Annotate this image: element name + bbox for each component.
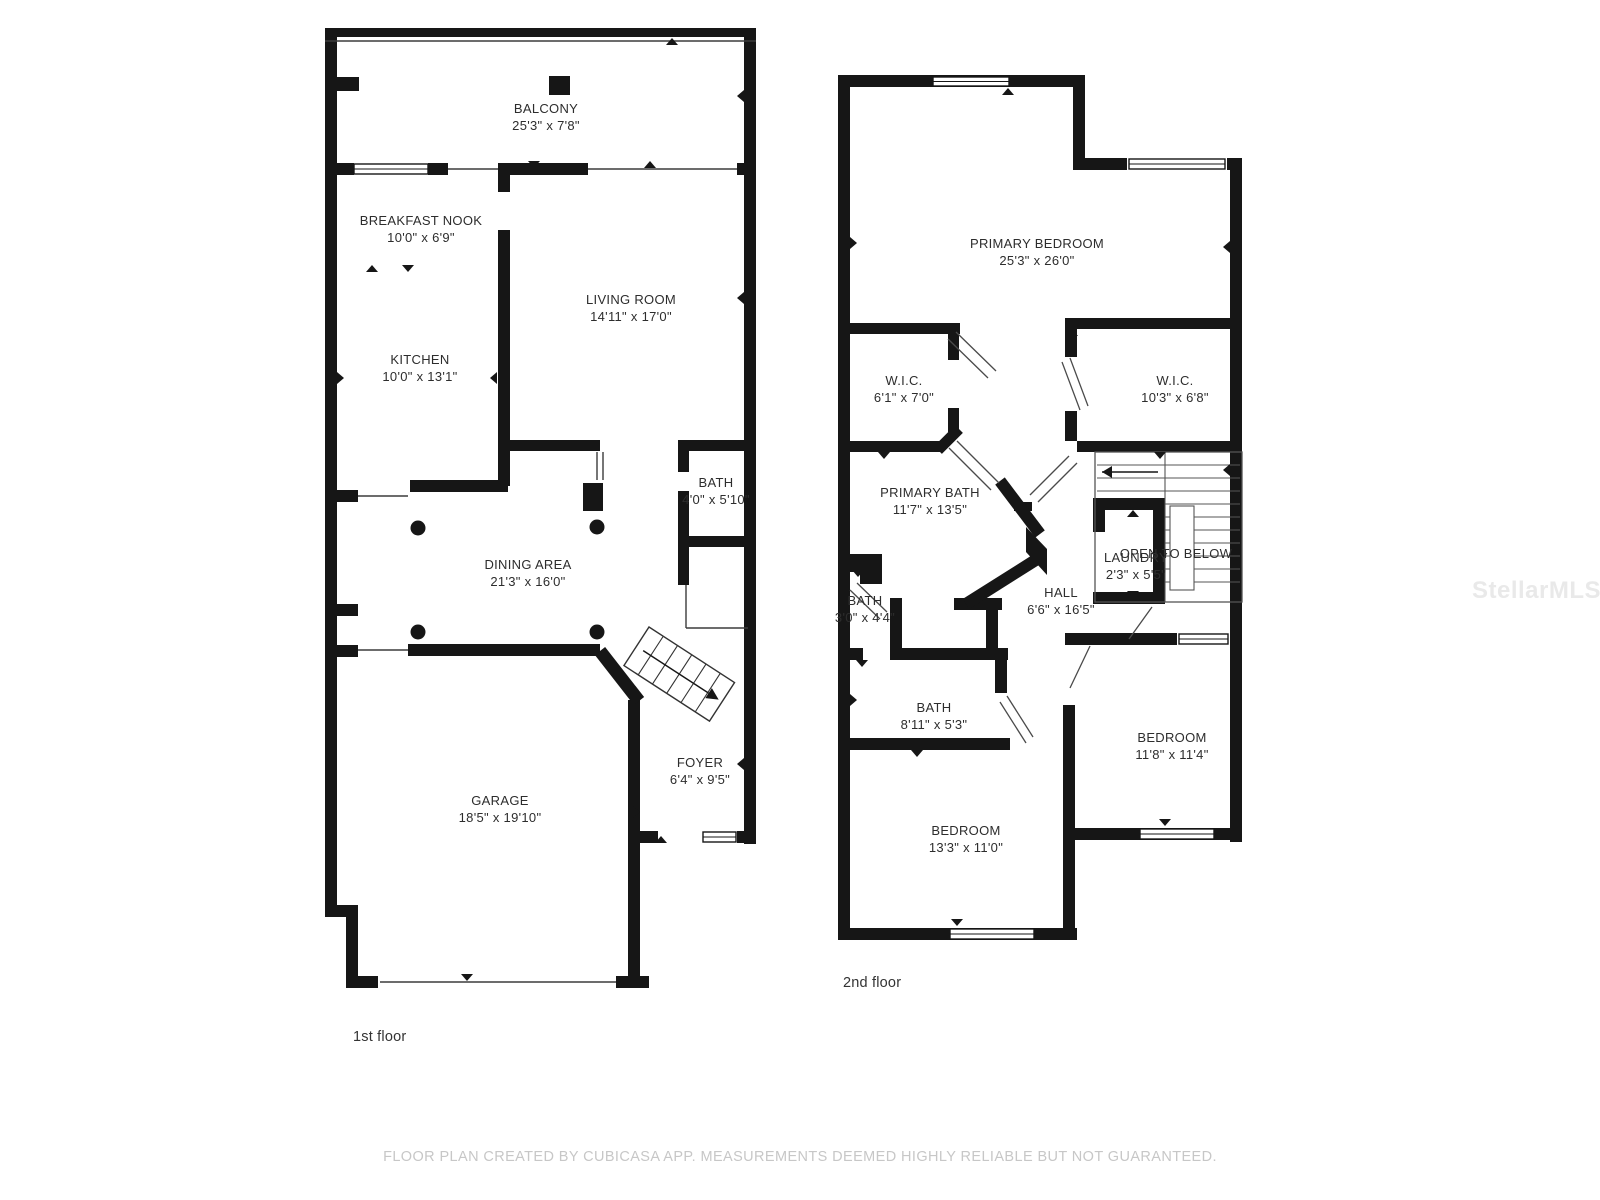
room-label-dining-area: DINING AREA 21'3" x 16'0"	[484, 556, 571, 590]
second-floor-label: 2nd floor	[843, 975, 901, 991]
room-label-primary-bath: PRIMARY BATH 11'7" x 13'5"	[880, 484, 980, 518]
stellar-mls-watermark: StellarMLS	[1472, 577, 1600, 605]
room-label-breakfast-nook: BREAKFAST NOOK 10'0" x 6'9"	[360, 212, 482, 246]
first-floor-plan	[325, 28, 756, 988]
room-label-bedroom-bottom: BEDROOM 13'3" x 11'0"	[929, 822, 1003, 856]
floor-plan-drawing	[0, 0, 1600, 1200]
first-floor-openings	[325, 41, 756, 982]
room-label-garage: GARAGE 18'5" x 19'10"	[459, 792, 542, 826]
balcony-column	[549, 76, 570, 95]
floor-plan-page: BALCONY 25'3" x 7'8" BREAKFAST NOOK 10'0…	[0, 0, 1600, 1200]
first-floor-label: 1st floor	[353, 1029, 406, 1045]
room-label-bath-small: BATH 3'0" x 4'4"	[835, 592, 895, 626]
room-label-primary-bedroom: PRIMARY BEDROOM 25'3" x 26'0"	[970, 235, 1104, 269]
room-label-hall: HALL 6'6" x 16'5"	[1027, 584, 1095, 618]
room-label-bedroom-right: BEDROOM 11'8" x 11'4"	[1135, 729, 1208, 763]
room-label-living-room: LIVING ROOM 14'11" x 17'0"	[586, 291, 676, 325]
room-label-bath-2f: BATH 8'11" x 5'3"	[901, 699, 968, 733]
room-label-bath-1f: BATH 4'0" x 5'10"	[682, 474, 750, 508]
room-label-kitchen: KITCHEN 10'0" x 13'1"	[382, 351, 457, 385]
room-label-foyer: FOYER 6'4" x 9'5"	[670, 754, 730, 788]
footer-disclaimer: FLOOR PLAN CREATED BY CUBICASA APP. MEAS…	[0, 1149, 1600, 1165]
room-label-open-to-below: OPEN TO BELOW	[1120, 545, 1233, 562]
staircase-icon	[624, 627, 735, 721]
room-label-wic-right: W.I.C. 10'3" x 6'8"	[1141, 372, 1209, 406]
room-label-balcony: BALCONY 25'3" x 7'8"	[512, 100, 580, 134]
room-label-wic-left: W.I.C. 6'1" x 7'0"	[874, 372, 934, 406]
